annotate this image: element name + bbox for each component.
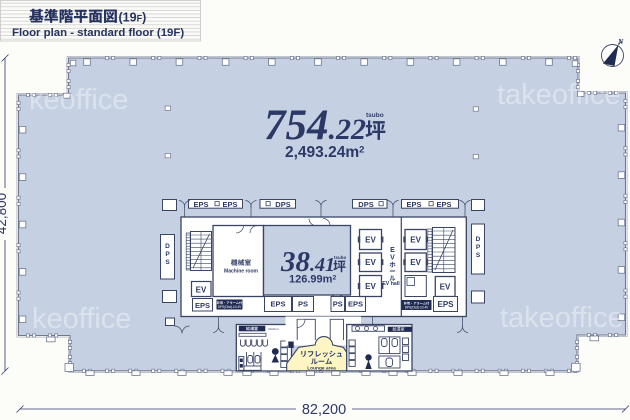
- svg-text:Floor plan - standard floor (1: Floor plan - standard floor (19F): [12, 27, 184, 39]
- svg-text:82,200: 82,200: [302, 402, 346, 418]
- svg-text:EV: EV: [365, 258, 376, 267]
- svg-text:tsubo: tsubo: [334, 255, 346, 260]
- svg-text:D: D: [165, 243, 170, 250]
- svg-text:EV: EV: [410, 236, 421, 245]
- svg-text:給湯室: 給湯室: [393, 326, 405, 332]
- svg-text:EV: EV: [410, 258, 421, 267]
- svg-text:S: S: [476, 252, 481, 259]
- svg-text:42,800: 42,800: [0, 193, 9, 234]
- svg-text:EPS: EPS: [195, 301, 210, 310]
- svg-text:EV: EV: [365, 282, 376, 291]
- svg-text:Lounge area: Lounge area: [307, 365, 336, 371]
- svg-text:EPS: EPS: [436, 200, 451, 209]
- svg-text:126.99m2: 126.99m2: [289, 274, 336, 286]
- svg-text:keoffice: keoffice: [32, 303, 131, 335]
- svg-text:EPS: EPS: [348, 300, 363, 309]
- svg-text:DPS(Dist)-10.4V: DPS(Dist)-10.4V: [405, 306, 429, 310]
- svg-text:PS: PS: [333, 300, 343, 309]
- svg-text:EPS: EPS: [406, 200, 421, 209]
- svg-text:D: D: [476, 236, 481, 243]
- svg-text:V: V: [390, 255, 395, 262]
- svg-text:N: N: [617, 37, 624, 46]
- svg-text:tsubo: tsubo: [366, 112, 384, 119]
- svg-text:PS: PS: [298, 300, 308, 309]
- svg-text:(19F): (19F): [119, 11, 147, 25]
- svg-text:DPS(Dist)-10.4V: DPS(Dist)-10.4V: [218, 305, 242, 309]
- svg-text:Kitchen: Kitchen: [269, 327, 279, 331]
- svg-text:EV: EV: [365, 236, 376, 245]
- svg-text:DPS: DPS: [358, 200, 373, 209]
- svg-text:P: P: [165, 251, 170, 258]
- svg-text:keoffice: keoffice: [29, 84, 128, 116]
- svg-text:takeoffice: takeoffice: [497, 79, 621, 111]
- svg-text:EV hall: EV hall: [382, 281, 400, 287]
- svg-text:EPS: EPS: [270, 300, 285, 309]
- svg-text:EPS: EPS: [193, 200, 208, 209]
- svg-text:EV: EV: [440, 283, 451, 292]
- svg-text:takeoffice: takeoffice: [500, 302, 624, 334]
- svg-text:DPS: DPS: [275, 200, 290, 209]
- svg-text:2,493.24m2: 2,493.24m2: [285, 144, 364, 161]
- svg-text:EV: EV: [196, 286, 207, 295]
- svg-text:EPS: EPS: [437, 300, 454, 309]
- svg-text:S: S: [165, 259, 170, 266]
- svg-text:E: E: [390, 247, 395, 254]
- svg-text:P: P: [476, 244, 481, 251]
- svg-text:Machine room: Machine room: [224, 269, 258, 275]
- svg-text:EPS: EPS: [222, 200, 237, 209]
